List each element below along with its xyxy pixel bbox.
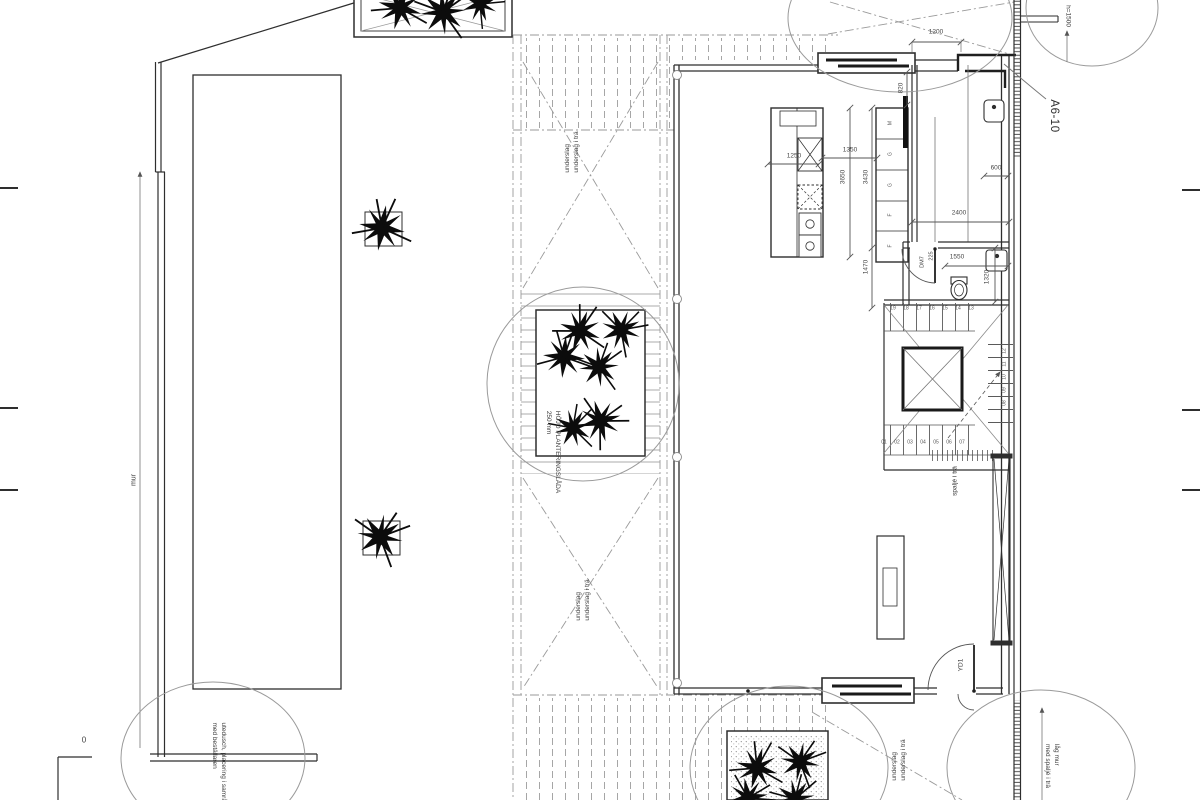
note-mur: mur xyxy=(129,474,138,486)
note-deck-joists-bottom: underslag underslag i trä xyxy=(891,739,909,780)
stair-step-number: 15 xyxy=(942,306,948,313)
scale-origin-label: 0 xyxy=(82,736,86,747)
planter-box-top xyxy=(354,0,512,50)
detail-leader xyxy=(1004,64,1046,99)
sideboard xyxy=(877,536,904,639)
kitchen-unit-tag: M xyxy=(888,121,895,125)
kitchen-island xyxy=(771,108,823,257)
hob xyxy=(798,138,822,171)
leaders xyxy=(1042,31,1067,800)
detail-reference: A6-10 xyxy=(1045,99,1061,132)
tree-planter-mid-lower xyxy=(345,496,424,576)
dimension-1350: 1350 xyxy=(843,147,857,156)
dimension-1250: 1250 xyxy=(787,153,801,162)
door-tag-dm: DM7 xyxy=(919,256,926,268)
sinks xyxy=(799,213,821,257)
stair-step-number: 05 xyxy=(933,440,939,447)
toilet xyxy=(951,277,967,300)
dimension-3430: 3430 xyxy=(863,170,872,184)
kitchen-unit-tag: G xyxy=(888,152,895,156)
entrance-door-yd1 xyxy=(928,644,976,710)
dimension-1320: 1320 xyxy=(984,270,993,284)
washbasin-north xyxy=(984,100,1004,122)
sliding-door-north xyxy=(818,53,915,73)
note-low-wall: låg mur med spaljé i trä xyxy=(1042,744,1060,788)
note-planter-box: HÖJD PLANTERINGSLÅDA 250 mm xyxy=(543,411,561,493)
washbasin-bath xyxy=(986,250,1007,271)
floor-plan-sheet: mur HÖJD PLANTERINGSLÅDA 250 mm undersla… xyxy=(0,0,1200,800)
note-deck-joists-mid: underslag underslag i trä xyxy=(575,579,593,620)
dimension-2400: 2400 xyxy=(952,210,966,219)
stair-step-number: 19 xyxy=(890,306,896,313)
dimension-1200: 1200 xyxy=(929,29,943,38)
kitchen-unit-tag: G xyxy=(888,183,895,187)
note-deck-joists-top: underslag underslag i trä xyxy=(564,131,582,172)
trellis-hatch-top xyxy=(1015,0,1021,158)
dimension-600: 600 xyxy=(991,165,1002,174)
note-outdoor-shower: utedusch, placering i samråd med beställ… xyxy=(209,722,227,800)
stair-step-number: 10 xyxy=(1002,374,1009,380)
stair-step-number: 11 xyxy=(1002,361,1009,366)
stair-step-number: 13 xyxy=(968,306,974,313)
stair-step-number: 02 xyxy=(894,440,900,447)
door-tag-yd1: YD1 xyxy=(958,659,967,672)
scale-origin-mark xyxy=(58,757,92,800)
stair-step-number: 08 xyxy=(1002,400,1009,406)
dimension-3650: 3650 xyxy=(840,170,849,184)
stair-step-number: 17 xyxy=(916,306,922,313)
lawn-area xyxy=(193,75,341,689)
stair-step-number: 07 xyxy=(959,440,965,447)
stair-step-number: 03 xyxy=(907,440,913,447)
stair-step-number: 01 xyxy=(881,440,887,447)
tree-planter-mid-upper xyxy=(350,192,418,256)
stair-step-number: 12 xyxy=(1002,348,1009,354)
dimension-820: 820 xyxy=(898,83,907,94)
dimension-225: 225 xyxy=(928,251,935,260)
note-trellis: spaljé i trä xyxy=(952,466,961,496)
dimension-1470: 1470 xyxy=(863,260,872,274)
note-trellis-height: h=1500 xyxy=(1063,5,1072,27)
kitchen-unit-tag: F xyxy=(888,244,895,247)
dimension-1550: 1550 xyxy=(950,254,964,263)
grate xyxy=(930,450,994,461)
floor-plan-drawing xyxy=(0,0,1200,800)
stair-step-number: 06 xyxy=(946,440,952,447)
planter-box-bottom xyxy=(724,726,838,800)
house-corner-northeast xyxy=(958,55,1016,88)
stair-step-number: 14 xyxy=(955,306,961,313)
worktop-dashed xyxy=(798,185,822,209)
stair-step-number: 18 xyxy=(903,306,909,313)
trellis-hatch-bottom xyxy=(1015,700,1021,800)
stair-step-number: 04 xyxy=(920,440,926,447)
stair-step-number: 09 xyxy=(1002,387,1009,393)
kitchen-unit-tag: F xyxy=(888,213,895,216)
stair-step-number: 16 xyxy=(929,306,935,313)
